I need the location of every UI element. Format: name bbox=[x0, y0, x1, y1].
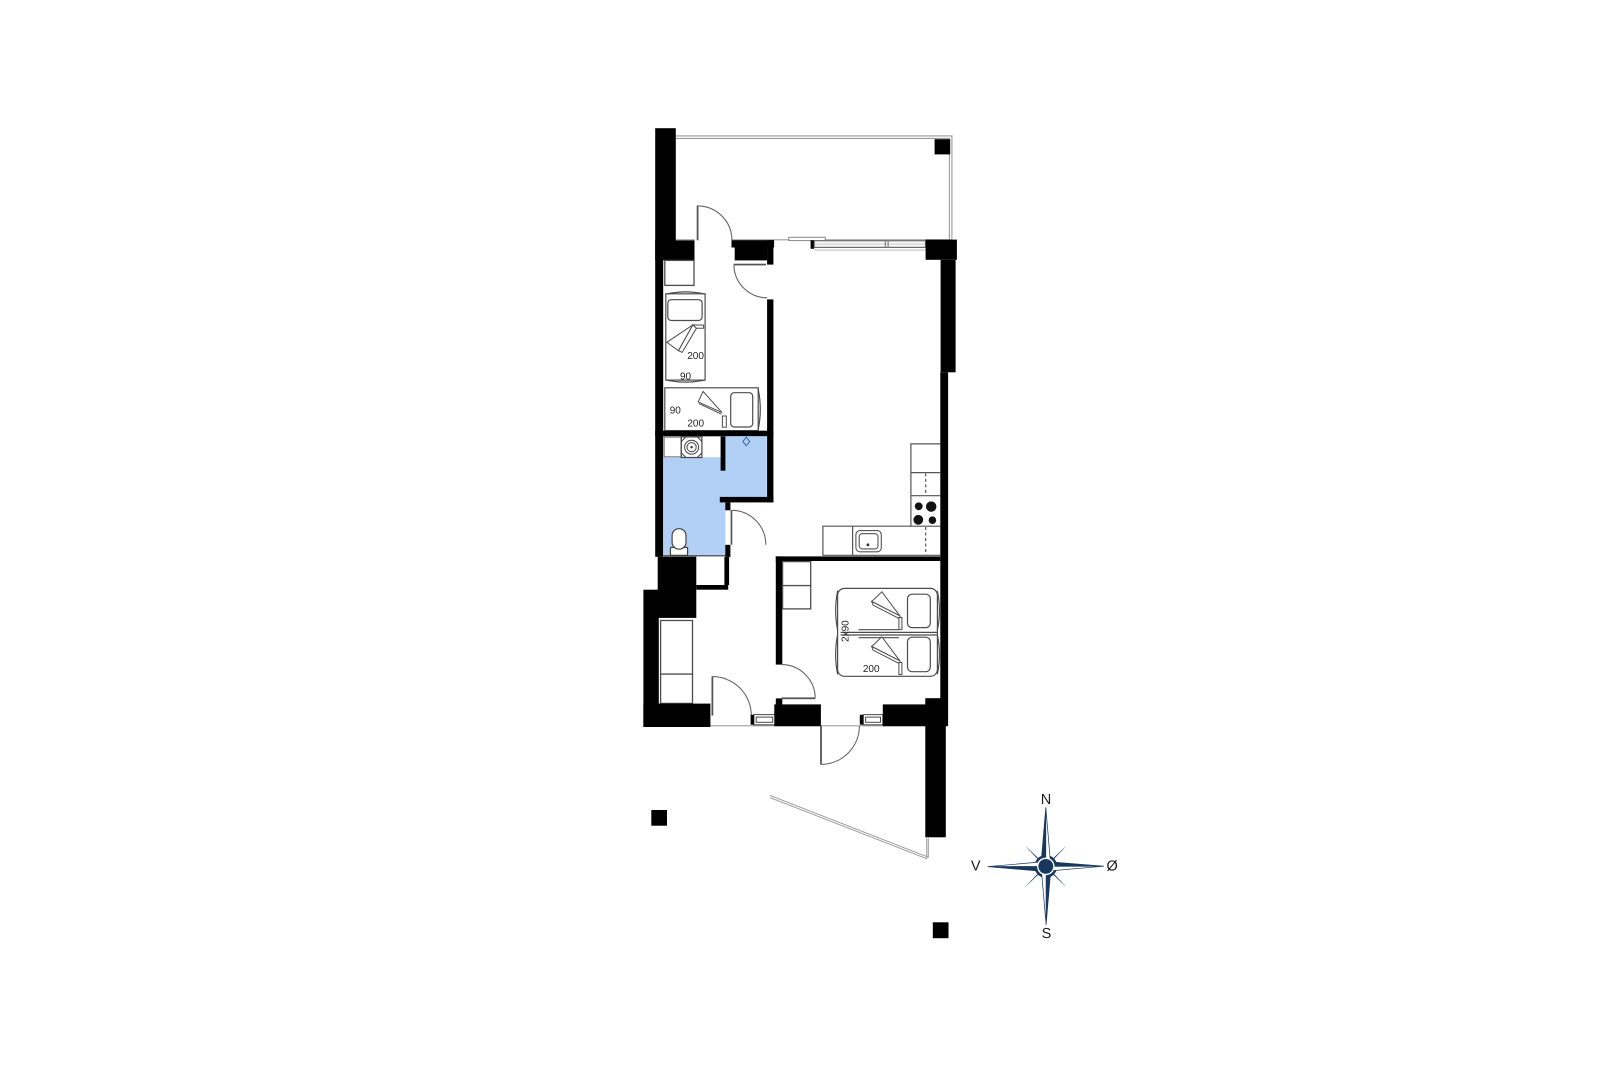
svg-text:V: V bbox=[971, 858, 981, 874]
svg-text:90: 90 bbox=[670, 406, 682, 417]
svg-text:N: N bbox=[1041, 792, 1051, 808]
svg-text:2x90: 2x90 bbox=[840, 620, 851, 642]
svg-text:200: 200 bbox=[687, 418, 704, 429]
svg-text:200: 200 bbox=[687, 351, 704, 362]
svg-text:200: 200 bbox=[863, 664, 880, 675]
svg-text:Ø: Ø bbox=[1107, 858, 1118, 874]
svg-text:90: 90 bbox=[680, 371, 692, 382]
svg-text:S: S bbox=[1042, 926, 1052, 942]
